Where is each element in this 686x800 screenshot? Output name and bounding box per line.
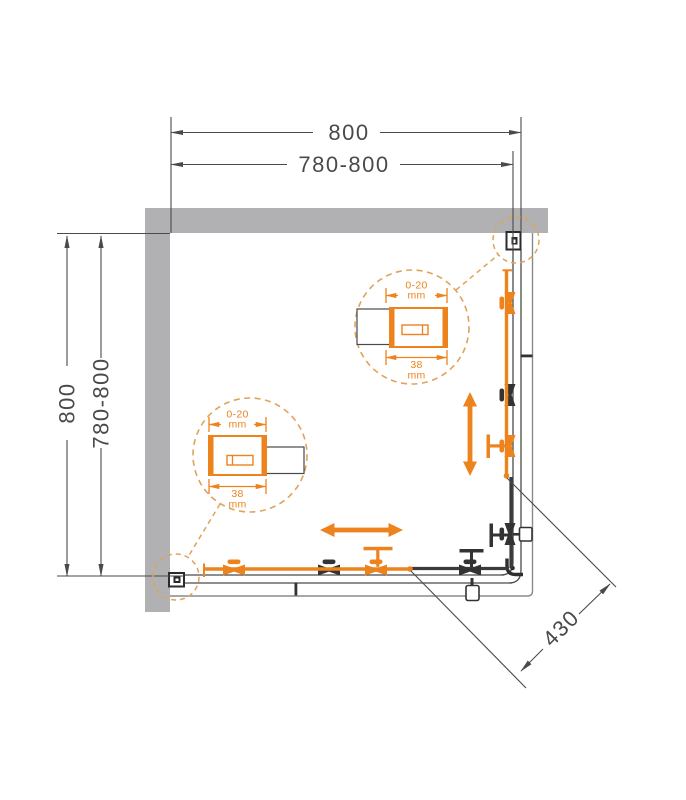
callout-right-width-unit: mm <box>407 370 425 382</box>
callout-right-wall-profile: 0-20 mm 38 mm <box>357 280 447 382</box>
door-bottom-leading-edge <box>407 566 413 572</box>
glass-panel-section <box>357 309 390 345</box>
dim-label-left-overall: 800 <box>55 382 80 423</box>
callout-right-range-unit: mm <box>407 290 425 302</box>
glass-clamp-right <box>521 355 533 358</box>
handle-bottom-orange <box>364 547 393 567</box>
dimension-top-adjust: 780-800 <box>171 151 513 250</box>
glass-panel-section <box>266 447 304 474</box>
callout-left-width-unit: mm <box>228 499 246 511</box>
dimension-left-adjust: 780-800 <box>89 236 114 576</box>
shower-enclosure-technical-drawing: 800 780-800 800 780-800 430 <box>0 0 686 800</box>
handle-right-orange <box>487 435 507 459</box>
callout-left-range-unit: mm <box>228 419 246 431</box>
dim-label-top-overall: 800 <box>328 120 369 145</box>
outer-boundary <box>170 233 533 596</box>
wall-profile-bottom-left <box>169 573 184 587</box>
dim-label-entry-diagonal: 430 <box>538 605 585 652</box>
slide-arrow-horizontal <box>320 523 403 537</box>
door-right-leading-edge <box>504 473 510 479</box>
room-walls <box>145 208 548 612</box>
dim-label-left-adjust: 780-800 <box>89 357 114 448</box>
dim-label-top-adjust: 780-800 <box>298 152 389 177</box>
glass-clamp-bottom <box>295 583 298 596</box>
slide-arrow-vertical <box>463 392 477 476</box>
callout-circles <box>153 217 539 600</box>
